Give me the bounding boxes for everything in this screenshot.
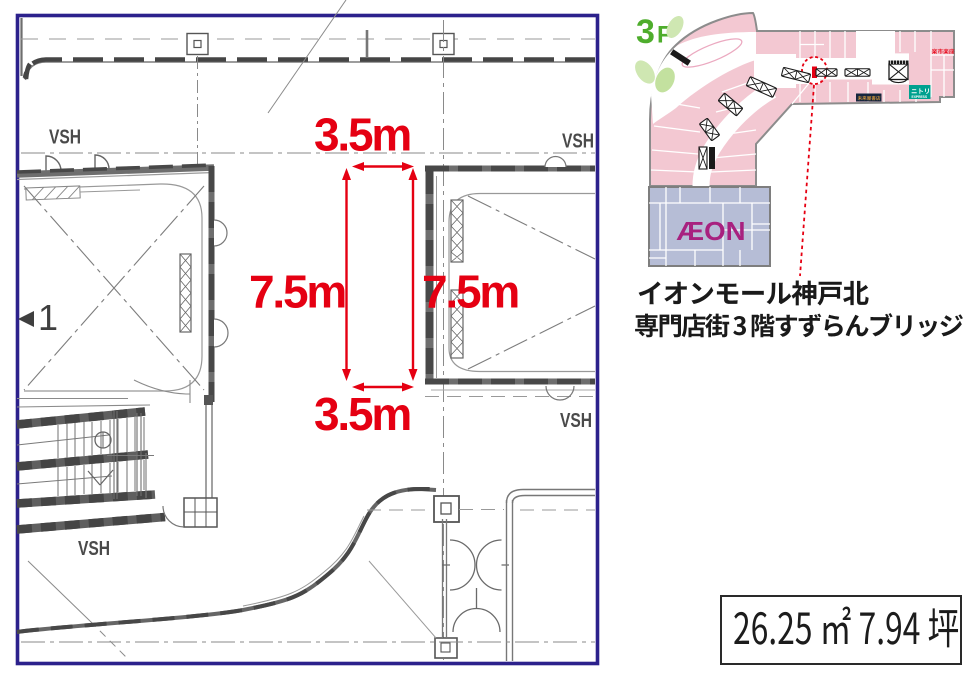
svg-text:VSH: VSH bbox=[78, 537, 110, 559]
svg-text:3.5m: 3.5m bbox=[314, 109, 410, 161]
svg-text:7.5m: 7.5m bbox=[422, 266, 518, 318]
svg-text:VSH: VSH bbox=[562, 130, 594, 152]
svg-text:7.5m: 7.5m bbox=[249, 266, 345, 318]
svg-text:ÆON: ÆON bbox=[677, 216, 746, 246]
svg-text:VSH: VSH bbox=[49, 126, 81, 148]
svg-text:VSH: VSH bbox=[560, 409, 592, 431]
svg-text:3: 3 bbox=[636, 13, 655, 51]
svg-text:EXPRESS: EXPRESS bbox=[912, 95, 928, 99]
svg-text:3.5m: 3.5m bbox=[314, 388, 410, 440]
svg-text:1: 1 bbox=[38, 297, 58, 338]
